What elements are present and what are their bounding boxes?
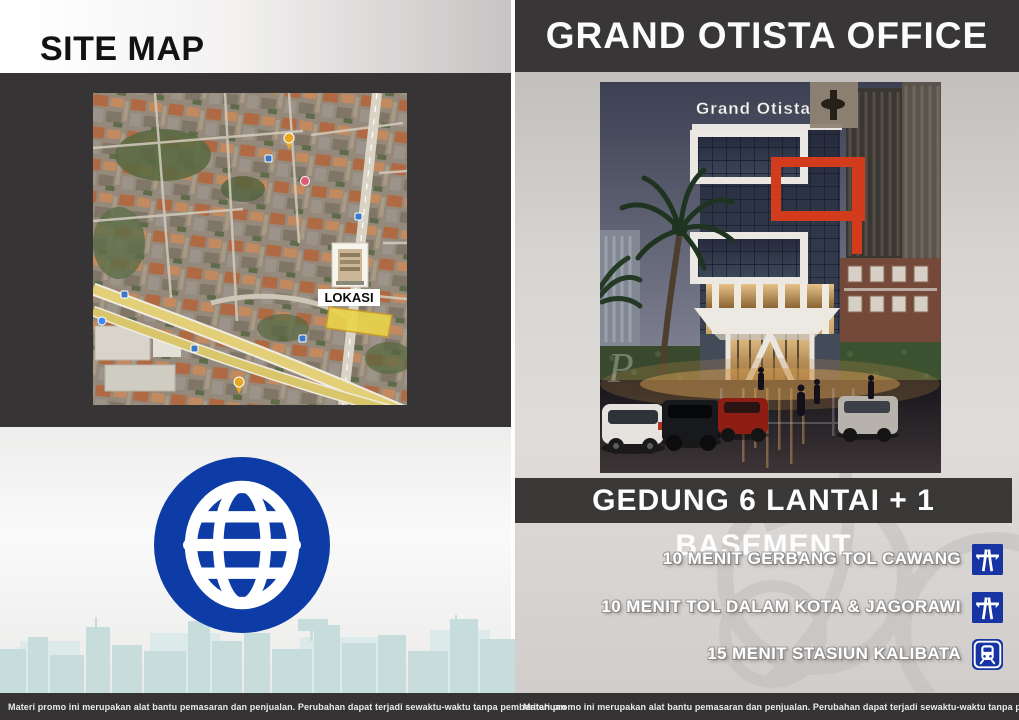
floors-banner: GEDUNG 6 LANTAI + 1 BASEMENT [515,478,1012,523]
motorway-icon [972,544,1003,575]
globe-glyph [154,457,330,633]
map-dot-blue [98,317,106,325]
feature-toll-dalam-kota: 10 MENIT TOL DALAM KOTA & JAGORAWI [601,591,1003,623]
train-icon [972,639,1003,670]
building-scene: Grand Otista P [600,82,941,473]
building-rendering: Grand Otista P [600,82,941,473]
disclaimer-bar: Materi promo ini merupakan alat bantu pe… [0,693,1019,720]
satellite-map: LOKASI [93,93,407,405]
globe-icon [154,457,330,633]
feature-label: 15 MENIT STASIUN KALIBATA [707,644,961,664]
feature-toll-cawang: 10 MENIT GERBANG TOL CAWANG [663,543,1003,575]
site-map-image: LOKASI [93,93,407,405]
brochure-page: SITE MAP [0,0,1019,720]
feature-stasiun-kalibata: 15 MENIT STASIUN KALIBATA [707,638,1003,670]
lokasi-text: LOKASI [324,290,373,305]
map-pin-pink [301,177,310,186]
feature-label: 10 MENIT TOL DALAM KOTA & JAGORAWI [601,597,961,617]
location-thumbnail [332,243,368,287]
building-sign-text: Grand Otista [696,99,811,118]
lokasi-label: LOKASI [318,289,380,306]
feature-label: 10 MENIT GERBANG TOL CAWANG [663,549,961,569]
site-map-header: SITE MAP [0,0,511,73]
project-title-banner: GRAND OTISTA OFFICE [515,0,1019,72]
project-title: GRAND OTISTA OFFICE [515,0,1019,72]
motorway-icon [972,592,1003,623]
render-watermark: P [607,346,634,392]
disclaimer-right: Materi promo ini merupakan alat bantu pe… [523,702,1019,712]
disclaimer-left: Materi promo ini merupakan alat bantu pe… [8,702,566,712]
site-map-title: SITE MAP [0,0,511,69]
